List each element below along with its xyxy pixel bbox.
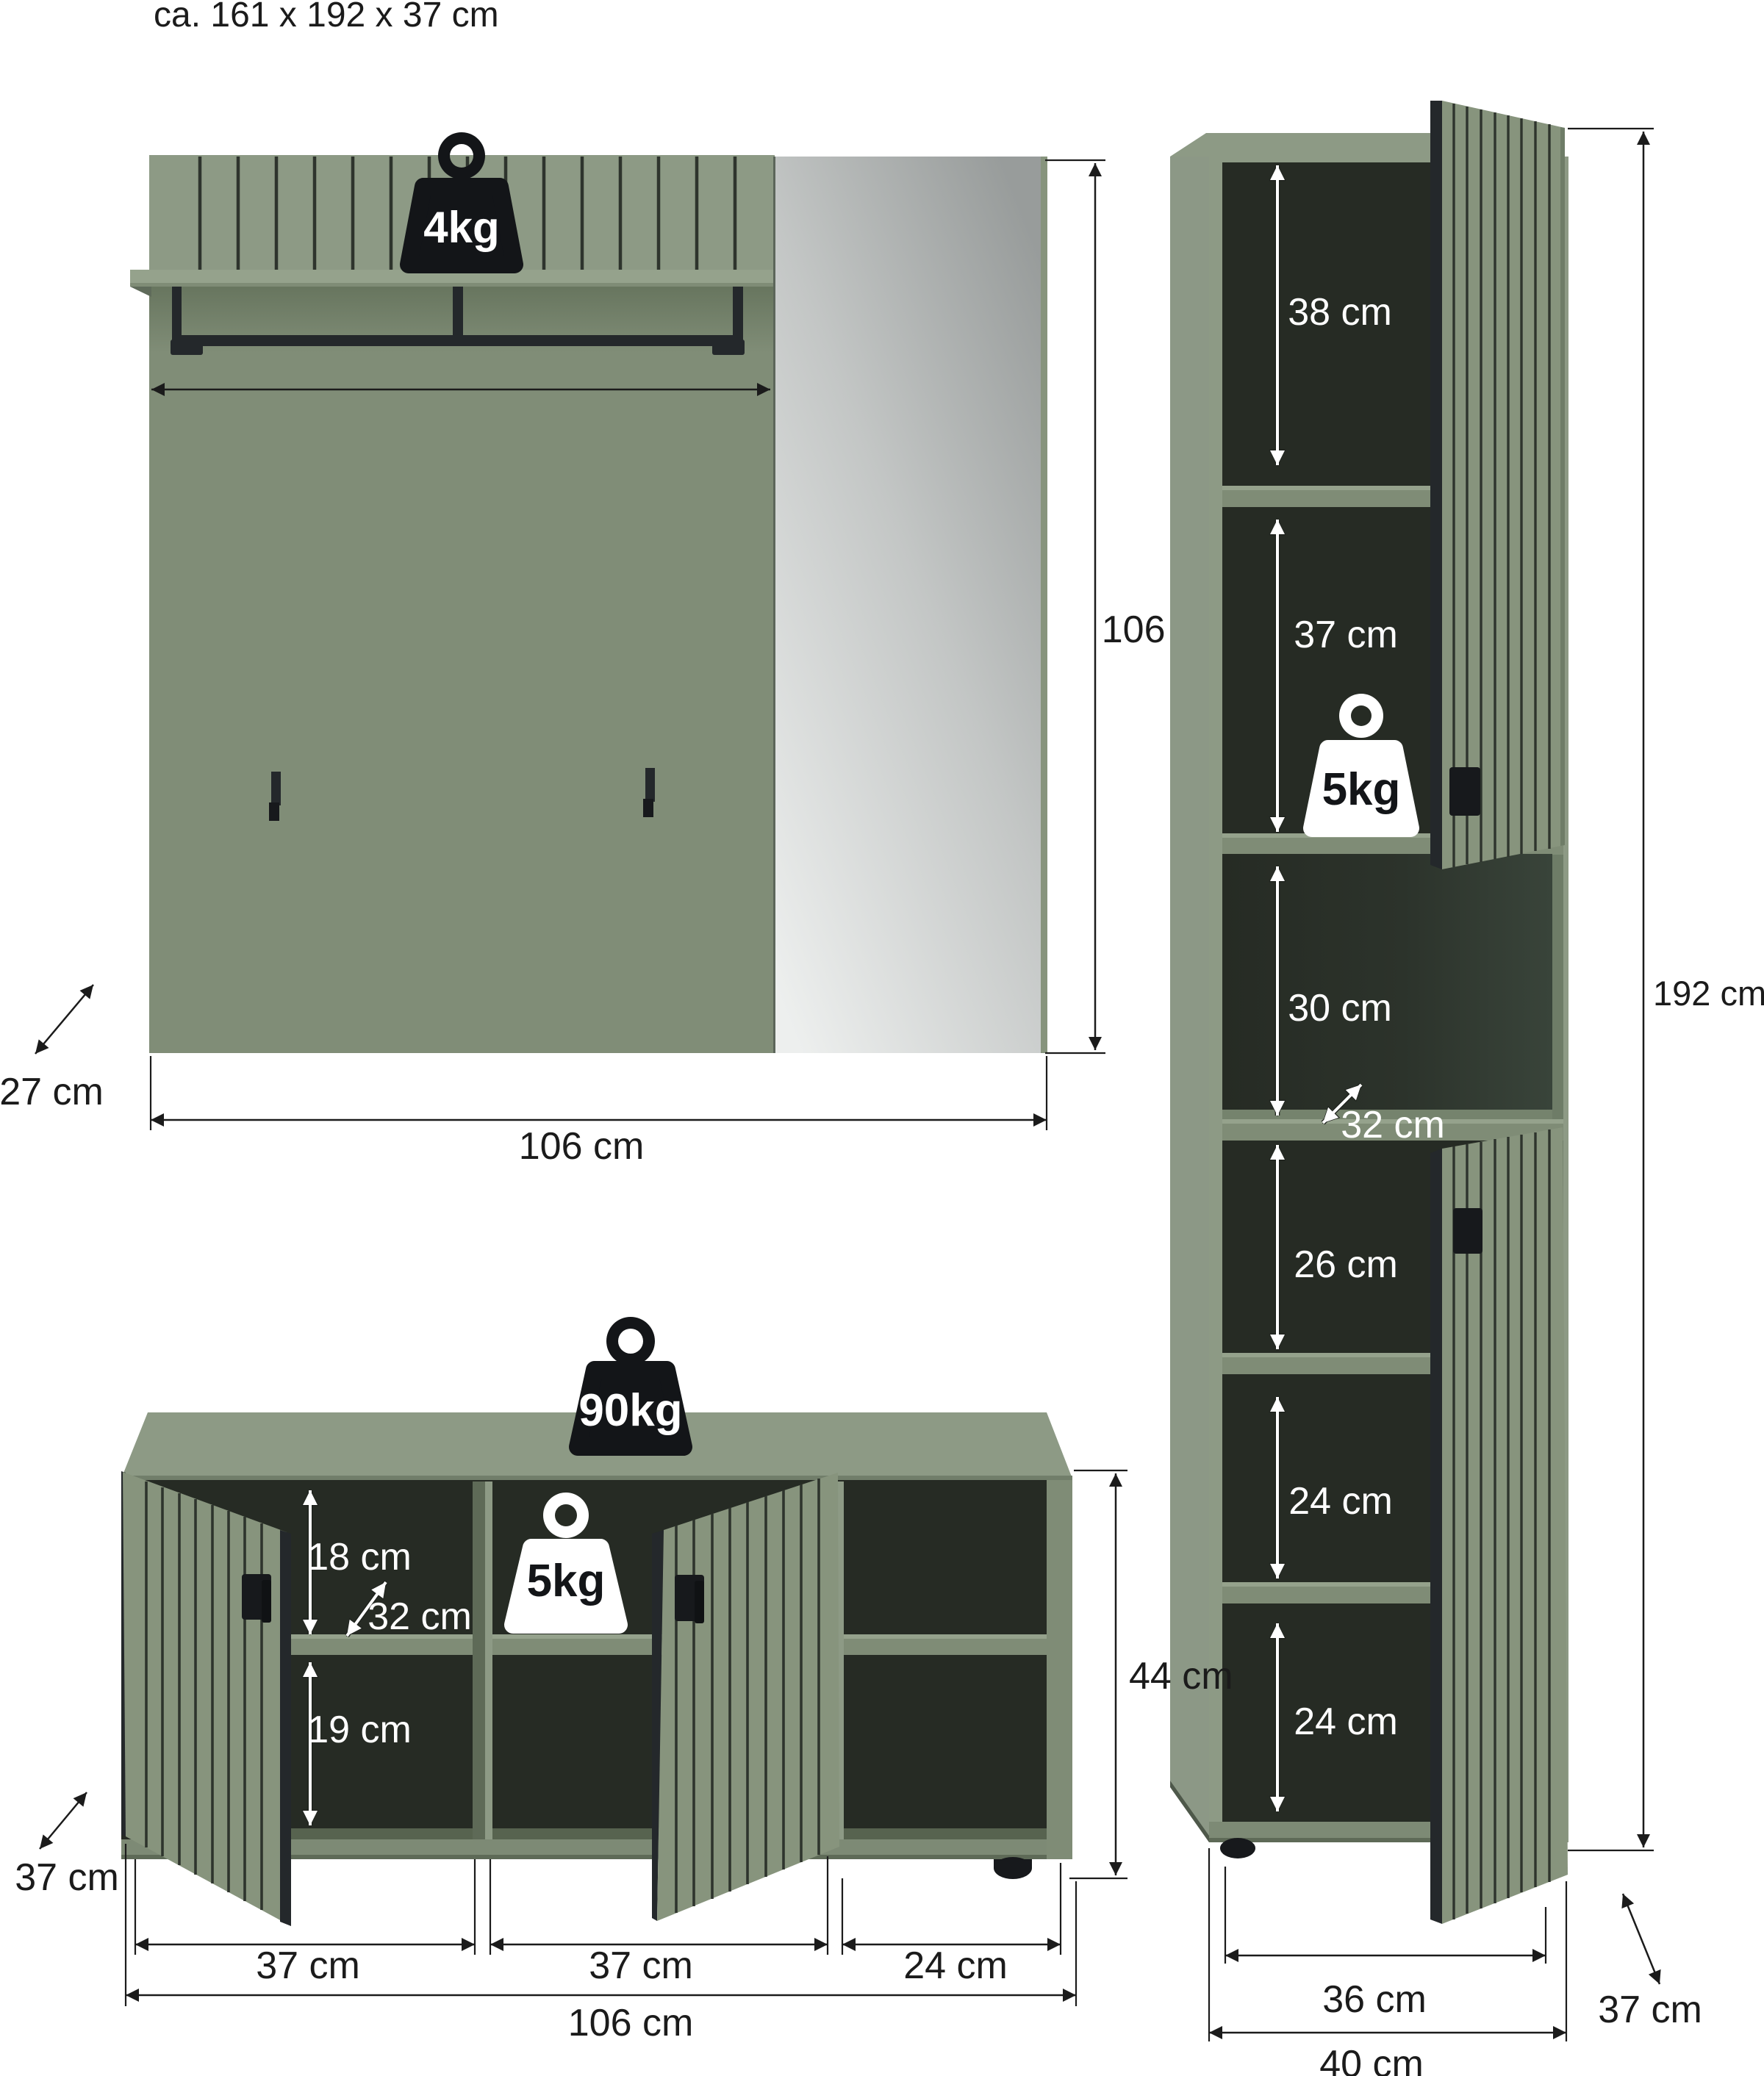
svg-text:37 cm: 37 cm	[1294, 614, 1398, 656]
svg-text:192 cm: 192 cm	[1653, 974, 1764, 1013]
svg-text:90kg: 90kg	[578, 1385, 682, 1436]
svg-text:5kg: 5kg	[527, 1556, 606, 1606]
svg-text:24 cm: 24 cm	[903, 1944, 1008, 1987]
svg-text:5kg: 5kg	[1322, 764, 1401, 815]
svg-text:37 cm: 37 cm	[1598, 1989, 1702, 2031]
svg-text:18 cm: 18 cm	[307, 1536, 412, 1578]
svg-text:24 cm: 24 cm	[1294, 1700, 1398, 1743]
svg-text:32 cm: 32 cm	[367, 1595, 472, 1638]
svg-text:37 cm: 37 cm	[256, 1944, 360, 1987]
svg-text:30 cm: 30 cm	[1288, 987, 1392, 1030]
svg-text:37 cm: 37 cm	[15, 1856, 119, 1899]
svg-text:32 cm: 32 cm	[1341, 1104, 1445, 1146]
svg-text:19 cm: 19 cm	[307, 1709, 412, 1751]
svg-text:4kg: 4kg	[423, 203, 499, 252]
svg-text:106 cm: 106 cm	[519, 1125, 645, 1168]
svg-text:38 cm: 38 cm	[1288, 291, 1392, 334]
svg-text:24 cm: 24 cm	[1288, 1480, 1393, 1523]
svg-text:27 cm: 27 cm	[0, 1071, 104, 1113]
svg-text:106 cm: 106 cm	[568, 2002, 694, 2044]
svg-text:40 cm: 40 cm	[1319, 2043, 1424, 2076]
svg-text:ca. 161 x 192 x 37 cm: ca. 161 x 192 x 37 cm	[154, 0, 499, 35]
svg-text:36 cm: 36 cm	[1322, 1978, 1427, 2021]
svg-text:26 cm: 26 cm	[1294, 1243, 1398, 1286]
svg-text:44 cm: 44 cm	[1129, 1655, 1233, 1698]
svg-text:37 cm: 37 cm	[589, 1944, 693, 1987]
